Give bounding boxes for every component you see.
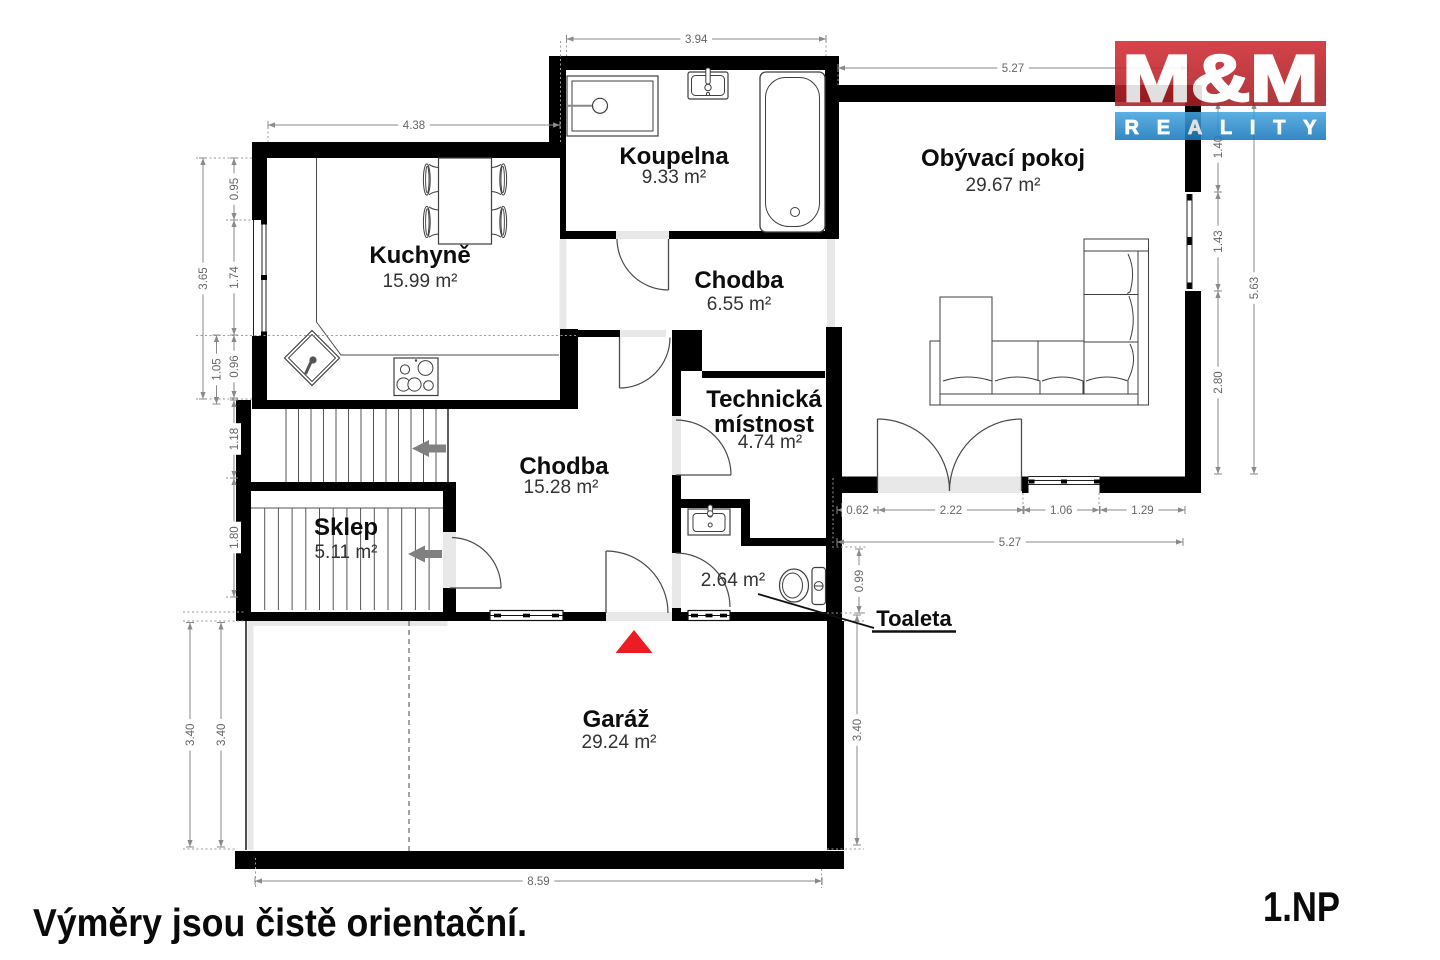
svg-text:5.27: 5.27 — [999, 537, 1021, 549]
svg-text:4.38: 4.38 — [403, 120, 425, 132]
svg-text:1.74: 1.74 — [229, 266, 241, 289]
svg-text:3.65: 3.65 — [198, 267, 210, 289]
svg-text:4.74 m²: 4.74 m² — [738, 432, 802, 453]
svg-text:5.63: 5.63 — [1249, 277, 1261, 299]
svg-text:0.62: 0.62 — [846, 505, 868, 517]
svg-text:2.22: 2.22 — [940, 505, 962, 517]
svg-text:Technická: Technická — [706, 386, 822, 413]
svg-text:6.55 m²: 6.55 m² — [707, 294, 771, 315]
svg-text:Chodba: Chodba — [694, 267, 784, 294]
svg-text:M&M: M&M — [1123, 41, 1319, 115]
svg-text:29.67 m²: 29.67 m² — [966, 175, 1041, 196]
svg-text:2.64 m²: 2.64 m² — [701, 570, 765, 591]
svg-text:1.NP: 1.NP — [1263, 883, 1340, 930]
svg-text:Obývací pokoj: Obývací pokoj — [921, 145, 1085, 172]
svg-text:Toaleta: Toaleta — [876, 606, 952, 631]
svg-text:Chodba: Chodba — [519, 453, 609, 480]
svg-text:1.29: 1.29 — [1131, 505, 1153, 517]
svg-text:5.11 m²: 5.11 m² — [314, 542, 377, 563]
svg-text:0.99: 0.99 — [854, 570, 866, 592]
svg-text:1.80: 1.80 — [229, 526, 241, 548]
svg-text:0.95: 0.95 — [229, 178, 241, 200]
svg-text:3.94: 3.94 — [685, 34, 708, 46]
svg-text:15.28 m²: 15.28 m² — [524, 477, 599, 498]
svg-text:9.33 m²: 9.33 m² — [642, 167, 706, 188]
svg-text:29.24 m²: 29.24 m² — [582, 732, 657, 753]
svg-text:Výměry jsou čistě orientační.: Výměry jsou čistě orientační. — [33, 902, 527, 945]
svg-text:3.40: 3.40 — [185, 724, 197, 746]
svg-text:15.99 m²: 15.99 m² — [383, 271, 458, 292]
svg-text:Sklep: Sklep — [314, 514, 378, 541]
svg-text:1.06: 1.06 — [1050, 505, 1072, 517]
svg-text:Koupelna: Koupelna — [619, 143, 729, 170]
svg-text:1.43: 1.43 — [1213, 230, 1225, 252]
svg-text:Garáž: Garáž — [583, 706, 650, 733]
svg-text:Kuchyně: Kuchyně — [369, 242, 470, 269]
svg-text:3.40: 3.40 — [216, 724, 228, 746]
svg-text:1.18: 1.18 — [229, 428, 241, 450]
svg-text:8.59: 8.59 — [527, 876, 549, 888]
svg-text:1.05: 1.05 — [211, 358, 223, 380]
svg-text:3.40: 3.40 — [852, 719, 864, 741]
svg-text:5.27: 5.27 — [1002, 63, 1024, 75]
svg-text:0.96: 0.96 — [229, 355, 241, 377]
svg-text:2.80: 2.80 — [1213, 371, 1225, 393]
